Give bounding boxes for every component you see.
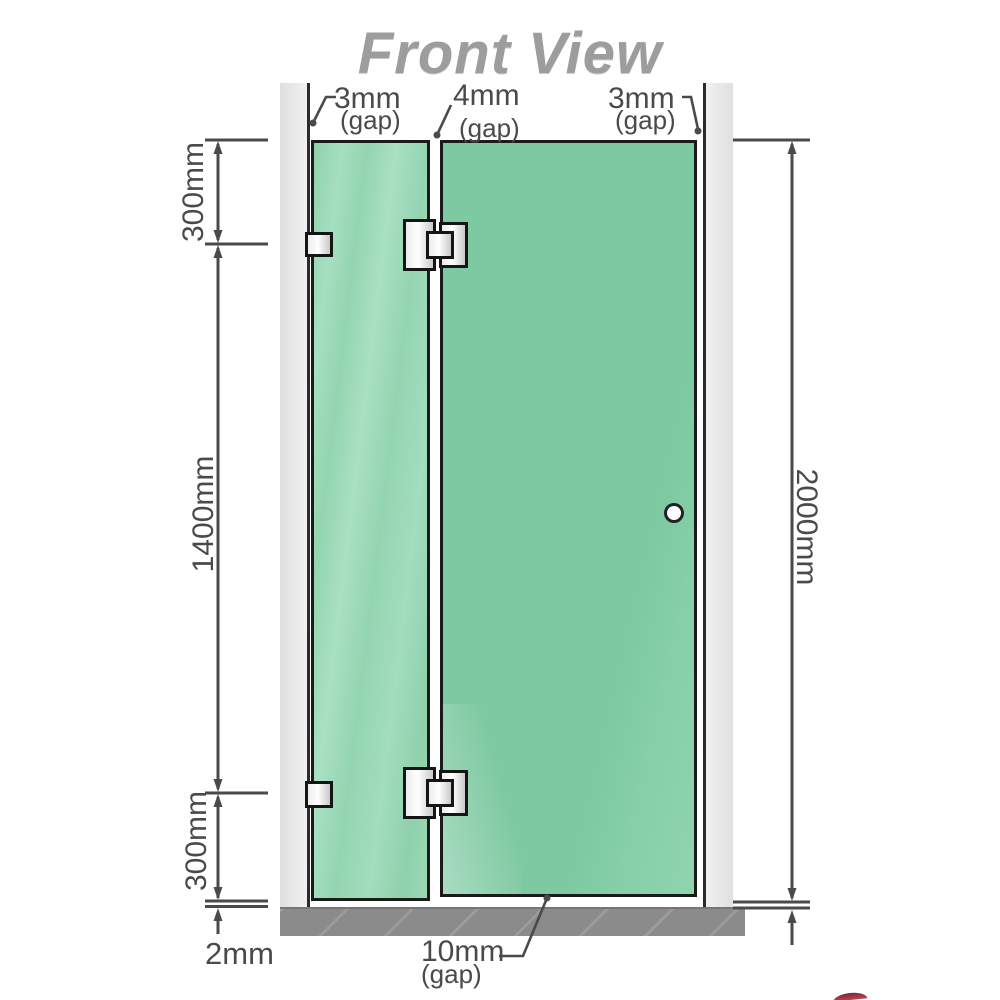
dimension-2000mm: 2000mm [791,469,821,586]
hinge-bottom-tab [426,779,454,807]
dimension-2mm: 2mm [205,938,274,969]
diagram-title: Front View [358,20,662,87]
gap-label-right-suffix: (gap) [615,107,676,133]
hinge-top-tab [426,231,454,259]
dimension-300mm-bottom: 300mm [182,791,212,891]
gap-label-bottom-suffix: (gap) [421,961,482,987]
right-wall [703,83,733,907]
watermark-logo-sliver [833,991,868,1000]
gap-label-middle-suffix: (gap) [459,115,520,141]
dimension-1400mm: 1400mm [189,456,219,573]
floor [280,907,745,936]
wall-bracket-top [305,232,333,257]
front-view-diagram: Front View [0,0,1000,1000]
door-knob [664,503,684,523]
door-glass-panel [440,140,697,897]
dimension-300mm-top: 300mm [179,142,209,242]
gap-label-left-suffix: (gap) [340,107,401,133]
wall-bracket-bottom [305,781,333,808]
gap-label-middle-value: 4mm [453,81,520,111]
